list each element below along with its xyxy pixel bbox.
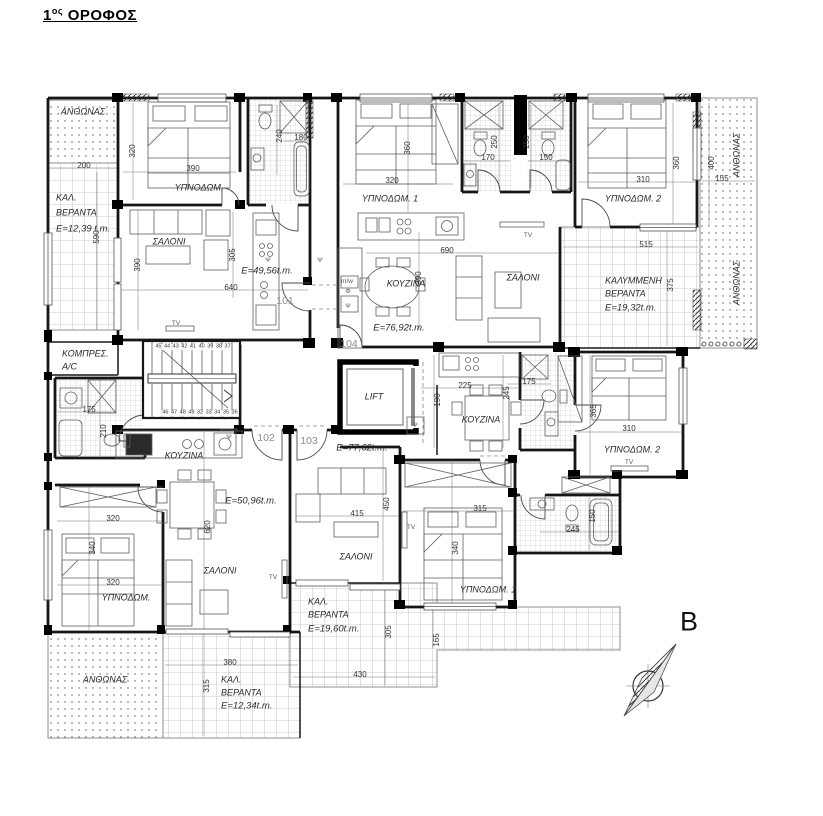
bed	[588, 100, 666, 188]
floor-plan-sheet: 1ος ΟΡΟΦΟΣ ΑΝΘΩΝΑΣ200ΚΑΛ.ΒΕΡΑΝΤΑE=12,39 …	[0, 0, 823, 816]
compass-rose	[624, 644, 676, 716]
kitchen-counters	[116, 213, 519, 458]
title-text: ΟΡΟΦΟΣ	[63, 7, 137, 24]
bed	[148, 102, 230, 188]
bed	[62, 534, 134, 626]
floor-plan-drawing	[0, 0, 823, 816]
page-title: 1ος ΟΡΟΦΟΣ	[43, 6, 137, 24]
stairs	[143, 341, 240, 418]
lift	[340, 362, 421, 432]
bed	[592, 356, 666, 420]
title-superscript: ος	[52, 6, 63, 16]
title-number: 1	[43, 7, 52, 24]
bed	[356, 100, 436, 184]
